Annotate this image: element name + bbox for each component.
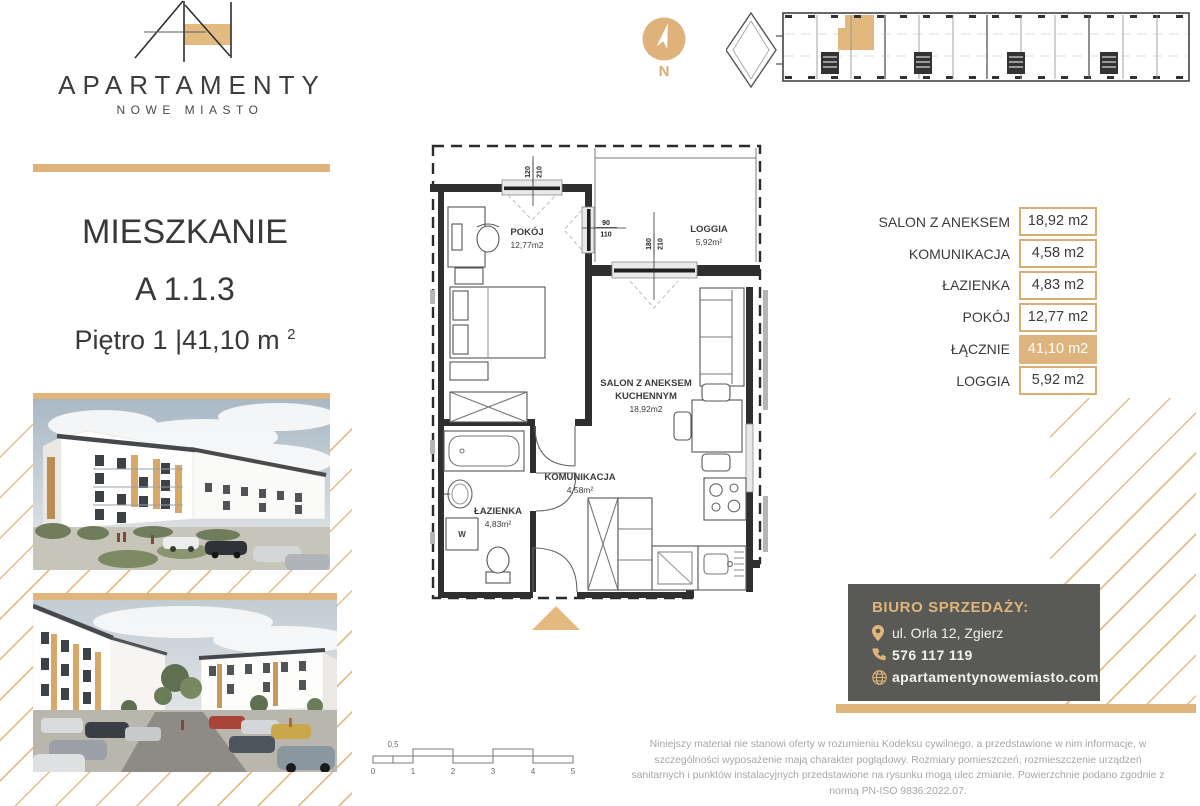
table-row: KOMUNIKACJA 4,58 m2 <box>845 238 1097 270</box>
svg-text:110: 110 <box>600 232 611 239</box>
room-area-loggia: 5,92m² <box>696 237 723 247</box>
contact-address: ul. Orla 12, Zgierz <box>892 625 1003 641</box>
room-area-salon: 18,92m2 <box>629 404 662 414</box>
table-row-total: ŁĄCZNIE 41,10 m2 <box>845 333 1097 365</box>
building-render-2 <box>33 600 337 772</box>
row-value: 12,77 m2 <box>1019 303 1097 332</box>
phone-icon <box>872 648 892 662</box>
contact-website[interactable]: apartamentynowemiasto.com <box>892 669 1099 685</box>
row-value: 4,58 m2 <box>1019 239 1097 268</box>
room-label-loggia: LOGGIA <box>690 224 728 235</box>
svg-text:120: 120 <box>525 166 532 178</box>
unit-heading: MIESZKANIE <box>30 213 340 252</box>
logo-title: APARTAMENTY <box>35 70 342 101</box>
loggia-railing <box>595 148 756 262</box>
gold-divider-bar <box>33 164 330 172</box>
row-value: 41,10 m2 <box>1019 335 1097 364</box>
unit-area: |41,10 m <box>168 325 280 355</box>
table-row: SALON Z ANEKSEM 18,92 m2 <box>845 206 1097 238</box>
svg-text:210: 210 <box>537 166 544 178</box>
table-row: ŁAZIENKA 4,83 m2 <box>845 270 1097 302</box>
row-label: LOGGIA <box>956 373 1010 389</box>
row-label: ŁĄCZNIE <box>951 341 1010 357</box>
table-row: POKÓJ 12,77 m2 <box>845 301 1097 333</box>
dim-door-180-210: 180 210 <box>646 212 665 300</box>
photo-courtyard <box>33 593 337 772</box>
unit-area-sup: 2 <box>287 326 295 343</box>
photo-top-bar-2 <box>33 593 337 600</box>
door-swings <box>533 426 577 592</box>
row-label: KOMUNIKACJA <box>909 246 1010 262</box>
row-value: 4,83 m2 <box>1019 271 1097 300</box>
row-label: POKÓJ <box>963 309 1010 325</box>
logo-monogram-icon <box>133 0 233 62</box>
kitchen-furniture <box>588 478 746 590</box>
scale-bar: 0,5 0 1 2 3 4 5 <box>368 740 583 784</box>
unit-title-block: MIESZKANIE A 1.1.3 Piętro 1 |41,10 m 2 <box>30 213 340 356</box>
svg-text:3: 3 <box>491 767 496 776</box>
contact-address-row: ul. Orla 12, Zgierz <box>872 625 1100 641</box>
photo-building-exterior <box>33 393 330 570</box>
svg-text:4: 4 <box>531 767 536 776</box>
svg-text:0: 0 <box>371 767 376 776</box>
svg-text:90: 90 <box>602 220 610 227</box>
scale-half-label: 0,5 <box>387 740 399 749</box>
gold-footer-bar <box>836 704 1196 713</box>
row-label: ŁAZIENKA <box>942 277 1010 293</box>
row-label: SALON Z ANEKSEM <box>879 214 1010 230</box>
contact-heading: BIURO SPRZEDAŻY: <box>872 599 1100 616</box>
building-render-1 <box>33 399 330 570</box>
building-keyplan <box>726 4 1196 96</box>
unit-code: A 1.1.3 <box>30 271 340 308</box>
room-label-pokoj: POKÓJ <box>510 226 543 238</box>
contact-phone-row[interactable]: 576 117 119 <box>872 647 1100 663</box>
sales-office-card: BIURO SPRZEDAŻY: ul. Orla 12, Zgierz 576… <box>848 584 1100 701</box>
room-label-salon-1: SALON Z ANEKSEM <box>600 378 692 389</box>
svg-text:210: 210 <box>658 238 665 250</box>
room-label-salon-2: KUCHENNYM <box>615 391 677 402</box>
location-pin-icon <box>872 625 892 641</box>
svg-text:180: 180 <box>646 238 653 250</box>
entrance-triangle-icon <box>532 606 580 630</box>
contact-website-row[interactable]: apartamentynowemiasto.com <box>872 669 1100 685</box>
room-label-komunikacja: KOMUNIKACJA <box>544 472 615 483</box>
compass-label: N <box>641 63 687 80</box>
svg-text:2: 2 <box>451 767 456 776</box>
globe-icon <box>872 670 892 685</box>
compass-north-icon <box>641 14 687 62</box>
row-value: 18,92 m2 <box>1019 207 1097 236</box>
room-area-komunikacja: 4,58m² <box>567 485 594 495</box>
svg-text:1: 1 <box>411 767 416 776</box>
row-value: 5,92 m2 <box>1019 366 1097 395</box>
unit-floor: Piętro 1 <box>75 325 168 355</box>
legal-disclaimer: Niniejszy materiał nie stanowi oferty w … <box>628 737 1168 799</box>
svg-text:5: 5 <box>571 767 576 776</box>
logo-subtitle: NOWE MIASTO <box>35 103 340 117</box>
room-label-lazienka: ŁAZIENKA <box>474 506 522 517</box>
room-area-pokoj: 12,77m2 <box>510 240 543 250</box>
area-table: SALON Z ANEKSEM 18,92 m2 KOMUNIKACJA 4,5… <box>845 206 1097 397</box>
room-area-lazienka: 4,83m² <box>485 519 512 529</box>
washer-label: W <box>458 530 466 539</box>
unit-floor-area: Piętro 1 |41,10 m 2 <box>30 325 340 356</box>
apartment-floor-plan: W POKÓJ <box>430 140 770 640</box>
brochure-page: APARTAMENTY NOWE MIASTO MIESZKANIE A 1.1… <box>0 0 1200 806</box>
table-row: LOGGIA 5,92 m2 <box>845 365 1097 397</box>
contact-phone[interactable]: 576 117 119 <box>892 647 973 663</box>
